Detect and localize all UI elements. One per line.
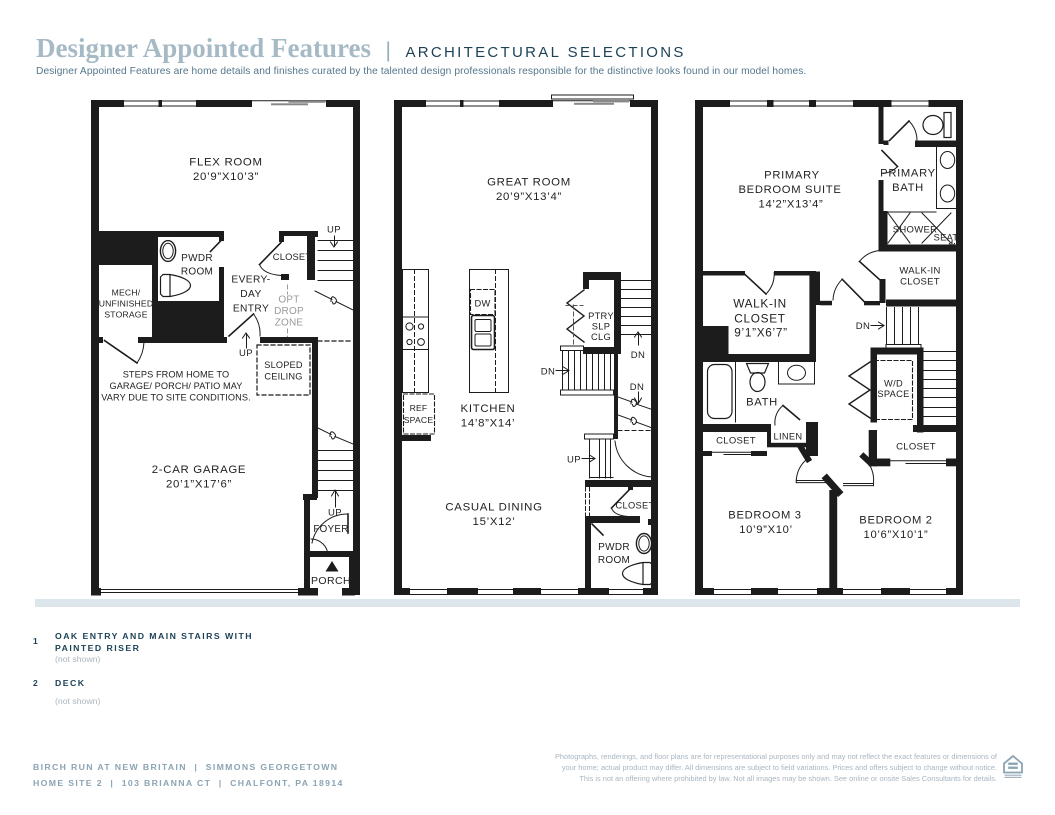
svg-text:SLOPED: SLOPED (264, 360, 303, 370)
svg-text:14’2”X13’4”: 14’2”X13’4” (759, 199, 824, 211)
svg-text:UP: UP (567, 455, 581, 466)
svg-text:BEDROOM SUITE: BEDROOM SUITE (739, 184, 842, 196)
svg-text:SPACE: SPACE (404, 415, 434, 425)
svg-text:UNFINISHED: UNFINISHED (99, 299, 154, 309)
svg-text:CLOSET: CLOSET (900, 277, 940, 288)
svg-text:GARAGE/ PORCH/ PATIO MAY: GARAGE/ PORCH/ PATIO MAY (109, 381, 242, 391)
svg-text:LINEN: LINEN (774, 432, 803, 442)
svg-text:DN: DN (631, 350, 646, 361)
svg-text:15’X12’: 15’X12’ (473, 516, 516, 528)
svg-text:DW: DW (474, 299, 490, 309)
svg-text:BEDROOM 3: BEDROOM 3 (728, 510, 801, 522)
svg-text:CLOSET: CLOSET (734, 312, 785, 326)
svg-text:20’9”X10’3”: 20’9”X10’3” (193, 171, 259, 183)
svg-text:DN: DN (541, 367, 556, 378)
svg-text:ENTRY: ENTRY (233, 304, 269, 315)
svg-text:UP: UP (327, 225, 341, 236)
svg-text:OPT: OPT (278, 295, 299, 306)
svg-text:20’9”X13’4”: 20’9”X13’4” (496, 191, 562, 203)
svg-text:VARY DUE TO SITE CONDITIONS.: VARY DUE TO SITE CONDITIONS. (101, 393, 251, 403)
svg-text:SEAT: SEAT (934, 233, 959, 243)
svg-text:SLP: SLP (592, 322, 610, 332)
svg-text:FLEX ROOM: FLEX ROOM (189, 157, 262, 169)
svg-text:UP: UP (328, 508, 342, 519)
svg-text:PWDR: PWDR (181, 253, 213, 264)
svg-text:ROOM: ROOM (598, 555, 630, 566)
svg-text:PTRY: PTRY (588, 311, 614, 321)
svg-text:STORAGE: STORAGE (104, 310, 147, 320)
svg-text:CLOSET: CLOSET (716, 436, 756, 447)
svg-text:20’1”X17’6”: 20’1”X17’6” (166, 479, 232, 491)
svg-text:ZONE: ZONE (275, 318, 304, 329)
svg-text:DAY: DAY (240, 289, 261, 300)
svg-text:BATH: BATH (892, 182, 924, 194)
svg-text:9’1”X6’7”: 9’1”X6’7” (734, 326, 788, 340)
svg-text:BATH: BATH (746, 397, 778, 409)
svg-text:DROP: DROP (274, 306, 304, 317)
svg-text:CLG: CLG (591, 332, 611, 342)
svg-text:CLOSET: CLOSET (896, 442, 936, 453)
svg-text:MECH/: MECH/ (112, 288, 141, 298)
svg-text:10’6”X10’1”: 10’6”X10’1” (864, 529, 929, 541)
svg-text:W/D: W/D (884, 379, 903, 389)
svg-text:PRIMARY: PRIMARY (764, 170, 820, 182)
svg-text:10’9”X10’: 10’9”X10’ (739, 524, 793, 536)
svg-text:PRIMARY: PRIMARY (880, 168, 936, 180)
svg-text:CASUAL DINING: CASUAL DINING (445, 502, 542, 514)
svg-text:FOYER: FOYER (313, 524, 348, 535)
svg-text:GREAT ROOM: GREAT ROOM (487, 177, 571, 189)
svg-text:UP: UP (239, 348, 253, 359)
svg-text:BEDROOM 2: BEDROOM 2 (859, 515, 932, 527)
svg-text:DN: DN (630, 382, 645, 393)
svg-text:STEPS FROM HOME TO: STEPS FROM HOME TO (123, 370, 230, 380)
svg-text:PORCH: PORCH (311, 575, 351, 587)
svg-text:ROOM: ROOM (181, 267, 213, 278)
svg-text:KITCHEN: KITCHEN (461, 403, 516, 415)
svg-text:REF: REF (410, 403, 428, 413)
svg-text:PWDR: PWDR (598, 542, 630, 553)
svg-text:SHOWER: SHOWER (893, 225, 938, 236)
svg-text:2-CAR GARAGE: 2-CAR GARAGE (152, 464, 246, 476)
svg-text:CLOSET: CLOSET (273, 252, 312, 262)
svg-text:14’8”X14’: 14’8”X14’ (461, 418, 515, 430)
svg-text:CEILING: CEILING (264, 372, 302, 382)
svg-text:WALK-IN: WALK-IN (733, 297, 787, 311)
svg-text:EVERY-: EVERY- (231, 275, 270, 286)
svg-text:SPACE: SPACE (877, 389, 909, 399)
svg-text:DN: DN (856, 321, 871, 332)
svg-text:CLOSET: CLOSET (616, 501, 655, 511)
svg-text:WALK-IN: WALK-IN (899, 266, 940, 277)
